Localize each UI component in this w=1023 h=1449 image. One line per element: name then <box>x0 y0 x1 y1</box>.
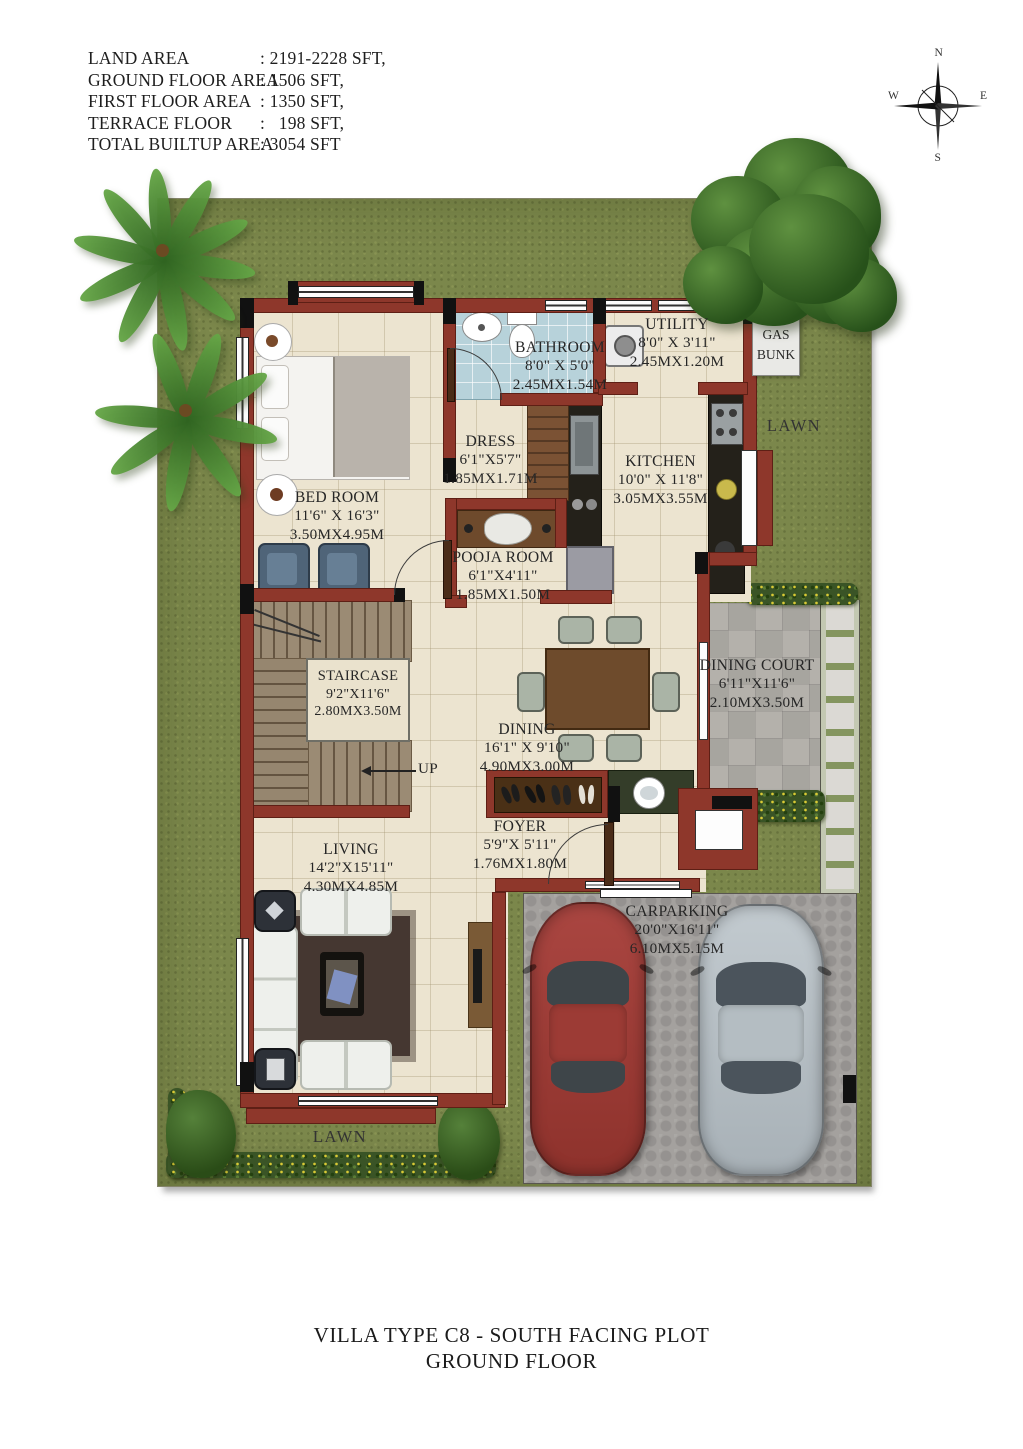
sink-bowl <box>575 422 593 466</box>
stair-base-wall <box>246 805 410 818</box>
hedge-row-top <box>745 583 858 605</box>
info-value: : 198 SFT, <box>260 113 344 135</box>
wall-pooja-east <box>555 498 567 548</box>
counter-bowl <box>586 499 597 510</box>
stepping-stones <box>826 604 854 889</box>
info-value: : 1350 SFT, <box>260 91 344 113</box>
area-summary: LAND AREA: 2191-2228 SFT, GROUND FLOOR A… <box>88 48 386 156</box>
bathroom-window <box>545 300 587 311</box>
bedroom-label: BED ROOM11'6" X 16'3"3.50MX4.95M <box>272 488 402 544</box>
stair-flight-bottom <box>308 740 412 812</box>
side-table <box>254 890 296 932</box>
info-label: TOTAL BUILTUP AREA <box>88 134 260 156</box>
stair-flight-top <box>248 600 412 662</box>
side-table <box>254 1048 296 1090</box>
pooja-label: POOJA ROOM6'1"X4'11"1.85MX1.50M <box>443 548 563 604</box>
deity-idol-icon <box>484 513 532 545</box>
gate-post <box>843 1075 856 1103</box>
wall-bathroom-south <box>500 393 603 406</box>
info-row: FIRST FLOOR AREA: 1350 SFT, <box>88 91 386 113</box>
carparking-label: CARPARKING20'0"X16'11"6.10MX5.15M <box>612 902 742 958</box>
dining-chair <box>606 616 642 644</box>
dining-table <box>545 648 650 730</box>
utility-window <box>600 300 652 311</box>
counter-bowl <box>572 499 583 510</box>
wall-living-east <box>492 892 506 1105</box>
dining-label: DINING16'1" X 9'10"4.90MX3.00M <box>462 720 592 776</box>
lamp-knob <box>464 524 473 533</box>
bathroom-label: BATHROOM8'0" X 5'0"2.45MX1.54M <box>490 338 630 394</box>
wall-utility-south-b <box>698 382 748 395</box>
wall-bedroom-south <box>240 588 400 602</box>
dining-chair <box>558 616 594 644</box>
bay-window <box>298 286 414 298</box>
compass-rose-icon: N E S W <box>888 44 988 162</box>
info-label: GROUND FLOOR AREA <box>88 70 260 92</box>
armchair-seat <box>327 553 357 585</box>
living-window-south <box>298 1096 438 1106</box>
info-label: TERRACE FLOOR <box>88 113 260 135</box>
basin-drain <box>478 324 485 331</box>
up-arrow-line <box>370 770 416 772</box>
hand-basin-icon <box>633 777 665 809</box>
dining-chair <box>517 672 545 712</box>
up-label: UP <box>418 760 454 779</box>
dining-chair <box>652 672 680 712</box>
info-row: TOTAL BUILTUP AREA: 3054 SFT <box>88 134 386 156</box>
lawn-label-bottom: LAWN <box>310 1127 370 1147</box>
bush-bottom-right <box>438 1100 500 1180</box>
info-row: GROUND FLOOR AREA: 1506 SFT, <box>88 70 386 92</box>
lamp-icon <box>266 1058 285 1081</box>
wall-pooja-north <box>445 498 567 510</box>
dining-chair <box>606 734 642 762</box>
info-value: : 3054 SFT <box>260 134 341 156</box>
dress-label: DRESS6'1"X5'7"1.85MX1.71M <box>428 432 553 488</box>
armchair-seat <box>267 553 297 585</box>
porch-slab <box>246 1108 436 1124</box>
portico-beam <box>712 796 752 809</box>
carpark-curb <box>600 889 692 898</box>
info-row: TERRACE FLOOR: 198 SFT, <box>88 113 386 135</box>
compass-s: S <box>935 152 941 162</box>
stove-icon <box>711 403 743 445</box>
sofa-two-seater <box>300 1040 392 1090</box>
coffee-table <box>320 952 364 1016</box>
kitchen-back-door <box>741 450 757 546</box>
stepping-stone-path <box>820 600 860 893</box>
stair-flight-left <box>248 658 312 812</box>
living-label: LIVING14'2"X15'11"4.30MX4.85M <box>286 840 416 896</box>
kitchen-counter-left <box>566 400 602 548</box>
up-arrow-icon <box>361 766 371 776</box>
dining-court-label: DINING COURT6'11"X11'6"2.10MX3.50M <box>692 656 822 712</box>
compass-e: E <box>980 90 987 102</box>
lamp-knob <box>542 524 551 533</box>
kitchen-sink-icon <box>570 415 599 475</box>
info-value: : 1506 SFT, <box>260 70 344 92</box>
info-label: LAND AREA <box>88 48 260 70</box>
blanket <box>333 357 410 477</box>
shade-tree <box>683 138 883 343</box>
kitchen-label: KITCHEN10'0" X 11'8"3.05MX3.55M <box>598 452 723 508</box>
shoe-rack <box>494 777 602 813</box>
bush-bottom-left <box>166 1090 236 1178</box>
compass-n: N <box>935 47 944 59</box>
foyer-label: FOYER5'9"X 5'11"1.76MX1.80M <box>455 817 585 873</box>
gas-bunk-label-2: BUNK <box>753 345 799 365</box>
refrigerator-icon <box>566 546 614 594</box>
diamond-decor-icon <box>265 901 283 919</box>
compass-w: W <box>888 90 899 102</box>
info-row: LAND AREA: 2191-2228 SFT, <box>88 48 386 70</box>
plan-subtitle: GROUND FLOOR <box>0 1348 1023 1374</box>
utility-label: UTILITY8'0" X 3'11"2.45MX1.20M <box>612 315 742 371</box>
floor-plan-page: LAND AREA: 2191-2228 SFT, GROUND FLOOR A… <box>0 0 1023 1449</box>
pooja-shelf <box>457 510 559 548</box>
plan-title: VILLA TYPE C8 - SOUTH FACING PLOT <box>0 1322 1023 1348</box>
info-label: FIRST FLOOR AREA <box>88 91 260 113</box>
palm-tree <box>100 158 270 488</box>
tv-icon <box>473 949 482 1003</box>
portico-step <box>695 810 743 850</box>
info-value: : 2191-2228 SFT, <box>260 48 386 70</box>
sandal-icon <box>587 785 594 804</box>
lawn-label-right: LAWN <box>764 416 824 436</box>
bed <box>256 356 410 480</box>
staircase-label: STAIRCASE9'2"X11'6"2.80MX3.50M <box>306 668 410 720</box>
sandal-icon <box>578 785 587 805</box>
kitchen-back-step <box>757 450 773 546</box>
